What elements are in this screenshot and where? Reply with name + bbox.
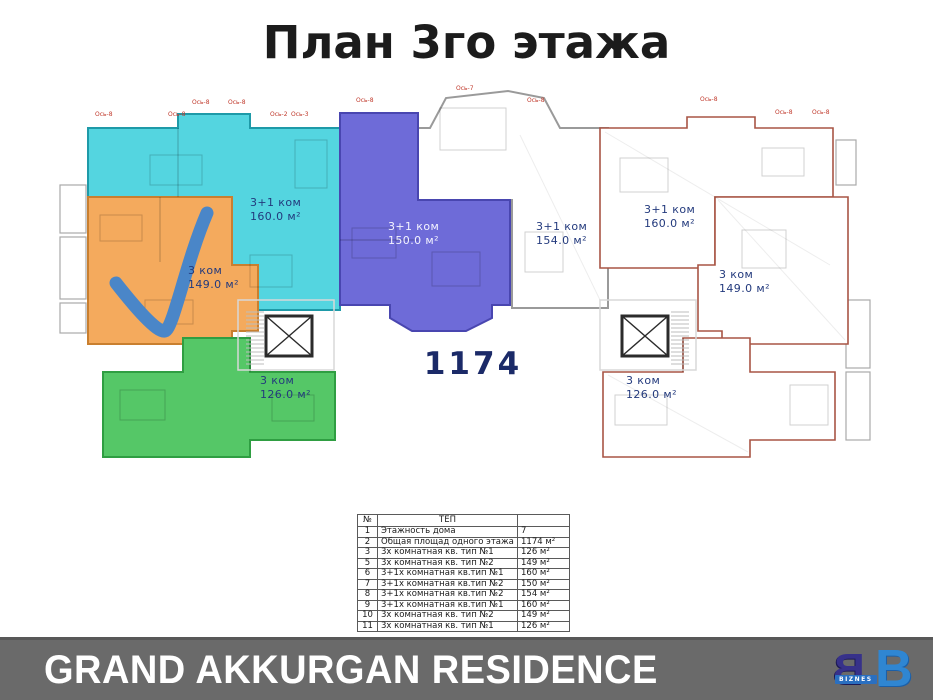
axis-label: Ось-8 [168,112,186,118]
axis-label: Ось-8 [356,98,374,104]
table-row: 83+1х комнатная кв.тип №2154 м² [358,590,570,601]
floor-plan-page: План 3го этажа [0,0,933,700]
page-title: План 3го этажа [0,16,933,69]
axis-label: Ось-8 [527,98,545,104]
apartment-label-left-top: 3+1 ком 160.0 м² [250,196,301,224]
axis-label: Ось-7 [456,86,474,92]
table-header-tep: ТЕП [378,515,518,527]
axis-label: Ось-8 [812,110,830,116]
table-row: 103х комнатная кв. тип №2149 м² [358,611,570,622]
table-row: 63+1х комнатная кв.тип №1160 м² [358,569,570,580]
axis-label: Ось-8 [228,100,246,106]
apartment-label-left-bottom: 3 ком 126.0 м² [260,374,311,402]
logo-letter-b: B [875,639,913,699]
apartment-label-right-middle: 3 ком 149.0 м² [719,268,770,296]
apartment-label-center: 3+1 ком 150.0 м² [388,220,439,248]
table-row: 73+1х комнатная кв.тип №2150 м² [358,579,570,590]
axis-label: Ось-3 [291,112,309,118]
table-header-value [518,515,570,527]
axis-label: Ось-2 [270,112,288,118]
total-area-value: 1174 [418,346,528,382]
axis-label: Ось-8 [192,100,210,106]
logo: B B BIZNES [827,643,919,700]
logo-letter-reversed-b: B [833,645,865,695]
axis-label: Ось-8 [700,97,718,103]
apartment-label-right-top: 3+1 ком 160.0 м² [644,203,695,231]
table-row: 2Общая площад одного этажа1174 м² [358,537,570,548]
apartment-label-center-right: 3+1 ком 154.0 м² [536,220,587,248]
table-row: 53х комнатная кв. тип №2149 м² [358,558,570,569]
tep-table: № ТЕП 1Этажность дома7 2Общая площад одн… [357,514,570,632]
table-row: 93+1х комнатная кв.тип №1160 м² [358,600,570,611]
table-row: 113х комнатная кв. тип №1126 м² [358,621,570,632]
footer-bar: GRAND AKKURGAN RESIDENCE B B BIZNES [0,637,933,700]
apartment-label-right-bottom: 3 ком 126.0 м² [626,374,677,402]
elevator-right-icon [622,316,668,356]
axis-label: Ось-8 [775,110,793,116]
apartment-label-left-middle: 3 ком 149.0 м² [188,264,239,292]
brand-title: GRAND AKKURGAN RESIDENCE [44,648,658,693]
logo-text: BIZNES [835,675,877,684]
table-row: 1Этажность дома7 [358,527,570,538]
table-header-number: № [358,515,378,527]
axis-label: Ось-8 [95,112,113,118]
table-header-row: № ТЕП [358,515,570,527]
elevator-left-icon [266,316,312,356]
table-row: 33х комнатная кв. тип №1126 м² [358,548,570,559]
